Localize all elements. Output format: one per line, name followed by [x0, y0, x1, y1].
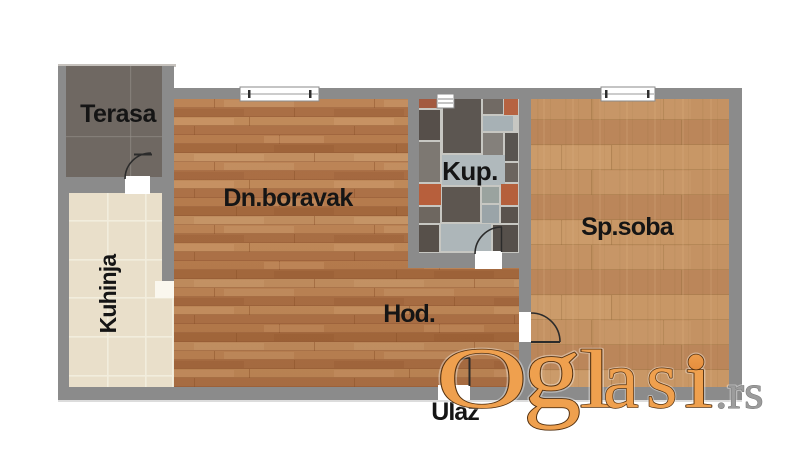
svg-text:Hod.: Hod. [383, 300, 435, 328]
svg-text:Sp.soba: Sp.soba [581, 213, 675, 241]
svg-text:ı: ı [684, 336, 713, 425]
svg-text:Terasa: Terasa [80, 100, 157, 128]
svg-text:O: O [436, 329, 528, 426]
svg-text:Dn.boravak: Dn.boravak [223, 184, 353, 212]
svg-text:s: s [646, 333, 678, 425]
svg-text:a: a [603, 333, 639, 425]
svg-text:g: g [523, 314, 581, 431]
svg-text:Kup.: Kup. [442, 156, 498, 186]
svg-text:Kuhinja: Kuhinja [95, 254, 121, 334]
svg-text:.rs: .rs [715, 366, 764, 419]
